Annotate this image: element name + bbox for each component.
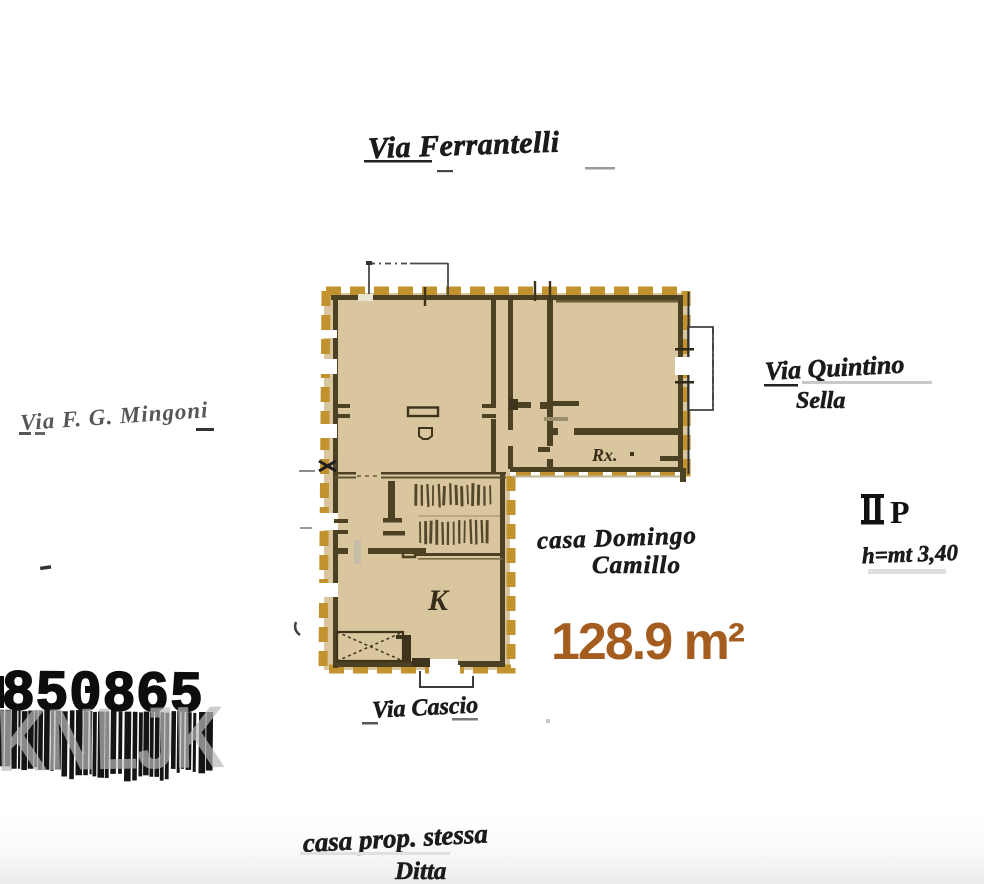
svg-text:Via F. G. Mingoni: Via F. G. Mingoni xyxy=(19,397,209,435)
svg-text:Sella: Sella xyxy=(796,388,845,414)
svg-text:casa Domingo: casa Domingo xyxy=(537,522,698,555)
svg-text:P: P xyxy=(890,494,910,530)
svg-text:Camillo: Camillo xyxy=(592,552,681,579)
svg-text:128.9 m²: 128.9 m² xyxy=(551,613,745,671)
svg-text:K: K xyxy=(427,584,450,617)
svg-text:Via Ferrantelli: Via Ferrantelli xyxy=(367,126,560,166)
svg-text:Via Quintino: Via Quintino xyxy=(764,350,905,386)
svg-text:Ditta: Ditta xyxy=(394,858,446,884)
svg-text:Rx.: Rx. xyxy=(591,445,618,465)
svg-text:h=mt 3,40: h=mt 3,40 xyxy=(861,540,958,568)
svg-text:KNLJK: KNLJK xyxy=(0,688,225,790)
